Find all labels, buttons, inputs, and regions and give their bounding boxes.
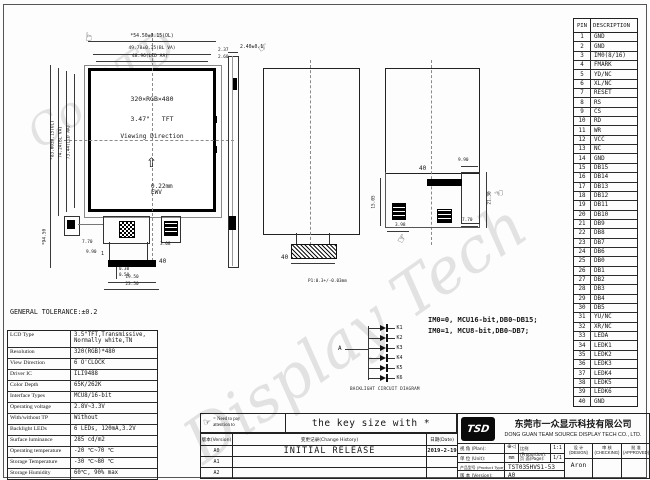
change-date: 2019-2-19 xyxy=(427,446,457,456)
dim-pitch1: 0.30 xyxy=(119,267,129,272)
pin-row: 35LEDK2 xyxy=(574,350,637,359)
cathode-label: K5 xyxy=(395,365,403,371)
spec-row: Color Depth65K/262K xyxy=(8,380,157,391)
led-wire xyxy=(368,328,380,329)
backlight-anode-wire xyxy=(345,349,368,350)
spec-row: With/without TPWithout xyxy=(8,413,157,424)
company-name-en: DONG GUAN TEAM SOURCE DISPLAY TECH CO., … xyxy=(496,432,650,438)
checking-label-en: (CHECKING) xyxy=(593,450,621,455)
bezel-tab-mark xyxy=(213,146,217,153)
plan-label: 视 角 (Plan): xyxy=(458,444,504,453)
dim-height-bl: 74.24(BL VA) xyxy=(60,126,65,158)
pin-table-body: 1GND2GND3IM0(8/16)4FMARK5YD/NC6XL/NC7RES… xyxy=(574,33,637,406)
dim-height-outline: *83.00±0.15(OL) xyxy=(52,120,57,160)
dim-bottom-right: 7.70 xyxy=(462,219,473,224)
change-description: INITIAL RELEASE xyxy=(233,446,427,456)
approved-signature xyxy=(621,458,650,478)
pin-number: 24 xyxy=(574,248,591,256)
pin-row: 4FMARK xyxy=(574,60,637,69)
product-type-value: TST035HVS1-53 xyxy=(504,462,564,470)
pin-description: IM0(8/16) xyxy=(591,53,637,59)
led-wire xyxy=(368,378,380,379)
change-version: A1 xyxy=(201,457,233,467)
unit-label: 单 位 (Unit): xyxy=(458,453,504,462)
front-view-dot-pitch: 0.22mm EWV xyxy=(151,184,173,197)
backlight-led-branch: K5 xyxy=(368,364,438,372)
pin-description: VCC xyxy=(591,137,637,143)
change-version: A2 xyxy=(201,468,233,478)
pin-description: WR xyxy=(591,128,637,134)
spec-value: 6 LEDs, 120mA,3.2V xyxy=(70,425,157,435)
pin-description: DB2 xyxy=(591,277,637,283)
spec-label: With/without TP xyxy=(8,414,70,424)
change-history-rows: A0INITIAL RELEASE2019-2-19A1A2 xyxy=(201,445,457,478)
change-description xyxy=(233,468,427,478)
spec-row: Storage Humidity60℃, 90% max xyxy=(8,468,157,479)
pin-number: 27 xyxy=(574,276,591,284)
company-row: TSD 东莞市一众显示科技有限公司 DONG GUAN TEAM SOURCE … xyxy=(458,414,650,444)
pin-description: DB8 xyxy=(591,230,637,236)
pin-row: 8RS xyxy=(574,97,637,106)
back-view-mid-pin40: 40 xyxy=(281,255,288,261)
side-view-fpc-fold xyxy=(229,216,236,230)
change-history-row: A0INITIAL RELEASE2019-2-19 xyxy=(201,445,457,456)
spec-label: Operating temperature xyxy=(8,447,70,457)
back-view-right-pin40: 40 xyxy=(419,166,426,172)
checking-signature xyxy=(592,458,621,478)
pin-number: 26 xyxy=(574,267,591,275)
pin-row: 17DB13 xyxy=(574,182,637,191)
proportion-label: 比例(Proportion): xyxy=(518,444,550,453)
back-view-mid-pitch-note: P1:0.3+/-0.03mm xyxy=(308,280,347,285)
dim-line-width-aa xyxy=(96,61,208,62)
pin-number: 16 xyxy=(574,173,591,181)
dim-right-1: 2.37 xyxy=(218,49,229,54)
pin-row: 38LEDK5 xyxy=(574,378,637,387)
spec-label: Storage Humidity xyxy=(8,469,70,479)
spec-row: Operating voltage2.8V~3.3V xyxy=(8,402,157,413)
front-view-size: 3.47" TFT xyxy=(92,116,212,123)
spec-label: Backlight LEDs xyxy=(8,425,70,435)
viewing-direction-arrow-icon: ⇧ xyxy=(146,157,157,171)
spec-row: Resolution320(RGB)*480 xyxy=(8,347,157,358)
spec-row: Driver ICILI9488 xyxy=(8,369,157,380)
dim-line-right-top xyxy=(461,166,478,167)
pin-description: NC xyxy=(591,146,637,152)
spec-value: -30 ℃~80 ℃ xyxy=(70,458,157,468)
pin-number: 21 xyxy=(574,220,591,228)
fpc-pin1-label: 1 xyxy=(101,252,104,257)
dim-fpc-left1: 7.70 xyxy=(82,241,93,246)
pin-row: 16DB14 xyxy=(574,172,637,181)
change-history-header: 版本(Version) 变更记录(Change History) 日期(Date… xyxy=(201,433,457,445)
spec-label: Driver IC xyxy=(8,370,70,380)
pin-row: 31YU/NC xyxy=(574,312,637,321)
spec-row: View Direction6 O'CLOCK xyxy=(8,358,157,369)
pin-description: DB7 xyxy=(591,240,637,246)
bezel-tab-mark xyxy=(213,116,217,123)
pin-row: 28DB3 xyxy=(574,284,637,293)
fpc-side-component-body xyxy=(67,220,75,229)
pin-description: LEDK2 xyxy=(591,352,637,358)
backlight-led-branch: K6 xyxy=(368,374,438,382)
key-size-cell: the key size with * xyxy=(286,414,457,433)
spec-label: LCD Type xyxy=(8,331,70,347)
led-wire xyxy=(388,338,395,339)
spec-row: Interface TypesMCU8/16-bit xyxy=(8,391,157,402)
pin-row: 23DB7 xyxy=(574,238,637,247)
key-size-text: the key size with * xyxy=(312,418,430,429)
back-view-mid-outline xyxy=(263,68,360,235)
page-value: 1/1 xyxy=(550,453,564,462)
pin-description: DB14 xyxy=(591,174,637,180)
pin-row: 33LEDA xyxy=(574,331,637,340)
pin-number: 20 xyxy=(574,211,591,219)
pin-number: 25 xyxy=(574,257,591,265)
pin-table-header: PIN DESCRIPTION xyxy=(574,19,637,33)
datasheet-page: { "icons": {"hand": "☞", "up_arrow": "⇧"… xyxy=(0,0,650,480)
pin-description: DB1 xyxy=(591,268,637,274)
pin-row: 27DB2 xyxy=(574,275,637,284)
pin-number: 36 xyxy=(574,360,591,368)
cathode-label: K6 xyxy=(395,375,403,381)
led-wire xyxy=(368,348,380,349)
logo-text: TSD xyxy=(466,424,490,435)
pin-row: 34LEDK1 xyxy=(574,340,637,349)
pin-row: 5YD/NC xyxy=(574,69,637,78)
dim-bottom-left: 3.98 xyxy=(395,224,406,229)
pin-description: CS xyxy=(591,109,637,115)
attention-hand-icon: ☞ xyxy=(82,32,95,42)
pin-number: 35 xyxy=(574,351,591,359)
dim-line-thickness xyxy=(228,52,238,53)
pitch-tick xyxy=(116,267,117,279)
legend-note-line2: attention to xyxy=(213,423,240,429)
spec-label: Operating voltage xyxy=(8,403,70,413)
spec-value: ILI9488 xyxy=(70,370,157,380)
pin-description: RESET xyxy=(591,90,637,96)
pin-number: 33 xyxy=(574,332,591,340)
pin-number: 29 xyxy=(574,295,591,303)
pin-number: 15 xyxy=(574,164,591,172)
spec-table: LCD Type3.5"TFT,Transmissive, Normally w… xyxy=(7,330,158,480)
company-logo: TSD xyxy=(461,417,495,441)
pin-description: GND xyxy=(591,399,637,405)
pin-number: 5 xyxy=(574,70,591,78)
history-header: 变更记录(Change History) xyxy=(233,434,427,445)
pin-row: 36LEDK3 xyxy=(574,359,637,368)
spec-value: 60℃, 90% max xyxy=(70,469,157,479)
dim-fpc-left2: 9.90 xyxy=(86,251,97,256)
pin-number: 11 xyxy=(574,126,591,134)
spec-value: 285 cd/m2 xyxy=(70,436,157,446)
spec-label: Resolution xyxy=(8,348,70,358)
pin-description: DB5 xyxy=(591,305,637,311)
pin-number: 4 xyxy=(574,61,591,69)
backside-ic-2 xyxy=(437,209,452,223)
version-value: A0 xyxy=(504,470,564,478)
pin-row: 20DB10 xyxy=(574,210,637,219)
cathode-label: K4 xyxy=(395,355,403,361)
pin-description: DB13 xyxy=(591,184,637,190)
change-history-row: A2 xyxy=(201,467,457,478)
pin-description: LEDK3 xyxy=(591,361,637,367)
pin-number: 8 xyxy=(574,98,591,106)
backlight-anode-label: A xyxy=(338,346,342,352)
dim-conn-w: 19.50 xyxy=(125,276,138,281)
proportion-value: 1:1 xyxy=(550,444,564,453)
spec-label: Surface luminance xyxy=(8,436,70,446)
pin-description: LEDK6 xyxy=(591,389,637,395)
backside-ic-1 xyxy=(392,203,406,220)
pin-row: 22DB8 xyxy=(574,228,637,237)
pin-description: DB9 xyxy=(591,221,637,227)
pin-table: PIN DESCRIPTION 1GND2GND3IM0(8/16)4FMARK… xyxy=(573,18,638,407)
dim-height-total: *94.50 xyxy=(44,229,49,246)
back-view-mid-centerline xyxy=(310,60,311,250)
pin-description: YU/NC xyxy=(591,314,637,320)
pin-description: DB3 xyxy=(591,286,637,292)
pin-row: 40GND xyxy=(574,396,637,405)
unit-value: mm xyxy=(504,453,518,462)
pin-description: GND xyxy=(591,44,637,50)
front-view-centerline-v xyxy=(152,33,153,266)
design-signature: Aron xyxy=(564,458,592,478)
pin-row: 30DB5 xyxy=(574,303,637,312)
back-view-mid-dim-line xyxy=(291,263,335,264)
pin-number: 39 xyxy=(574,388,591,396)
pin-row: 2GND xyxy=(574,41,637,50)
pin-description: FMARK xyxy=(591,62,637,68)
pin-description: GND xyxy=(591,34,637,40)
change-date xyxy=(427,468,457,478)
product-type-label: 产品型号 (Product Type): xyxy=(458,462,504,470)
design-label-en: (DESIGN) xyxy=(565,450,592,455)
dim-fpc-w: 23.50 xyxy=(125,283,138,288)
spec-value: 320(RGB)*480 xyxy=(70,348,157,358)
spec-value: 2.8V~3.3V xyxy=(70,403,157,413)
dim-line-width-outline xyxy=(88,41,216,42)
pin-number: 7 xyxy=(574,89,591,97)
pin-number: 12 xyxy=(574,136,591,144)
fpc-pin40-label: 40 xyxy=(159,259,166,265)
legend-cell: ☞ = Need to pay attention to xyxy=(201,414,286,433)
dim-line-bottom-right xyxy=(461,226,478,227)
led-wire xyxy=(388,378,395,379)
pin-description: LEDK4 xyxy=(591,371,637,377)
change-history-row: A1 xyxy=(201,456,457,467)
dim-right-2: 2.60 xyxy=(218,56,229,61)
interface-note-line1: IM0=0, MCU16-bit,DB0~DB15; xyxy=(428,317,538,325)
pin-description: YD/NC xyxy=(591,72,637,78)
pin-row: 37LEDK4 xyxy=(574,368,637,377)
pin-description: XR/NC xyxy=(591,324,637,330)
pin-row: 10RD xyxy=(574,116,637,125)
pin-number: 22 xyxy=(574,229,591,237)
pin-row: 3IM0(8/16) xyxy=(574,51,637,60)
pin-number: 30 xyxy=(574,304,591,312)
fpc-neck xyxy=(109,242,148,261)
change-date xyxy=(427,457,457,467)
pin-description: LEDK1 xyxy=(591,343,637,349)
pin-col-header: PIN xyxy=(574,19,591,32)
back-view-right-connector-bar xyxy=(427,179,462,186)
approved-label-en: (APPROVED) xyxy=(622,450,650,455)
spec-row: Backlight LEDs6 LEDs, 120mA,3.2V xyxy=(8,424,157,435)
pin-description: LEDK5 xyxy=(591,380,637,386)
interface-note-line2: IM0=1, MCU8-bit,DB0~DB7; xyxy=(428,328,529,336)
pin-description: RD xyxy=(591,118,637,124)
pin-number: 28 xyxy=(574,285,591,293)
pin-number: 34 xyxy=(574,341,591,349)
fpc-connector-bar xyxy=(108,260,156,267)
projection-symbol: ⊕◁ xyxy=(504,444,518,453)
pin-row: 11WR xyxy=(574,125,637,134)
pin-number: 31 xyxy=(574,313,591,321)
dim-line-height-aa xyxy=(74,74,75,208)
approved-header: 批 准 (APPROVED) xyxy=(621,444,650,458)
front-view-viewing-direction: Viewing Direction xyxy=(92,134,212,141)
side-view-tape-mark xyxy=(233,78,237,90)
pin-row: 32XR/NC xyxy=(574,322,637,331)
back-view-right-tab xyxy=(461,172,480,224)
design-header: 设 计 (DESIGN) xyxy=(564,444,592,458)
spec-row: Storage Temperature-30 ℃~80 ℃ xyxy=(8,457,157,468)
pin-number: 9 xyxy=(574,108,591,116)
pin-number: 6 xyxy=(574,80,591,88)
company-name-cn: 东莞市一众显示科技有限公司 xyxy=(498,417,648,430)
pin-row: 26DB1 xyxy=(574,266,637,275)
dim-line-fpc-w xyxy=(104,289,159,290)
dim-width-bl: 49.78±0.35(BL VA) xyxy=(128,47,175,52)
backlight-led-branch: K3 xyxy=(368,344,438,352)
pin-row: 39LEDK6 xyxy=(574,387,637,396)
pin-number: 40 xyxy=(574,397,591,405)
driver-ic-chip xyxy=(119,221,135,238)
pin-number: 23 xyxy=(574,239,591,247)
led-wire xyxy=(368,368,380,369)
spec-row: LCD Type3.5"TFT,Transmissive, Normally w… xyxy=(8,331,157,347)
front-view-resolution: 320×RGB×480 xyxy=(92,96,212,103)
dim-line-left-side xyxy=(380,178,381,226)
led-wire xyxy=(368,358,380,359)
spec-row: Operating temperature-20 ℃~70 ℃ xyxy=(8,446,157,457)
pin-description: DB0 xyxy=(591,258,637,264)
spec-label: View Direction xyxy=(8,359,70,369)
title-block: TSD 东莞市一众显示科技有限公司 DONG GUAN TEAM SOURCE … xyxy=(457,414,649,478)
spec-label: Storage Temperature xyxy=(8,458,70,468)
pin-number: 32 xyxy=(574,323,591,331)
pin-description: DB15 xyxy=(591,165,637,171)
pin-description: DB6 xyxy=(591,249,637,255)
pin-row: 15DB15 xyxy=(574,163,637,172)
backlight-caption: BACKLIGHT CIRCUIT DIAGRAM xyxy=(350,388,420,393)
pin-description: GND xyxy=(591,156,637,162)
version-label: 版 本 (Version): xyxy=(458,470,504,478)
back-view-mid-connector xyxy=(291,244,337,259)
led-wire xyxy=(368,338,380,339)
title-and-revision-block: ☞ = Need to pay attention to the key siz… xyxy=(200,413,650,479)
led-wire xyxy=(388,348,395,349)
pin-row: 14GND xyxy=(574,153,637,162)
pin-number: 3 xyxy=(574,52,591,60)
spec-value: 65K/262K xyxy=(70,381,157,391)
pin-row: 7RESET xyxy=(574,88,637,97)
spec-row: Surface luminance285 cd/m2 xyxy=(8,435,157,446)
pin-description: RS xyxy=(591,100,637,106)
dim-line-height-total xyxy=(50,65,51,268)
backlight-led-branch: K4 xyxy=(368,354,438,362)
pin-number: 37 xyxy=(574,369,591,377)
spec-value: 6 O'CLOCK xyxy=(70,359,157,369)
pin-row: 18DB12 xyxy=(574,191,637,200)
pin-number: 18 xyxy=(574,192,591,200)
pin-number: 19 xyxy=(574,201,591,209)
pin-row: 12VCC xyxy=(574,135,637,144)
pin-row: 1GND xyxy=(574,33,637,41)
cathode-label: K2 xyxy=(395,335,403,341)
page-label: 页 面(Page): xyxy=(518,453,550,462)
pin-number: 2 xyxy=(574,42,591,50)
pin-description: DB10 xyxy=(591,212,637,218)
pin-row: 21DB9 xyxy=(574,219,637,228)
change-version: A0 xyxy=(201,446,233,456)
pin-description: DB4 xyxy=(591,296,637,302)
cathode-label: K1 xyxy=(395,325,403,331)
general-tolerance-note: GENERAL TOLERANCE:±0.2 xyxy=(10,309,97,316)
pin-row: 19DB11 xyxy=(574,200,637,209)
pin-row: 24DB6 xyxy=(574,247,637,256)
pin-number: 1 xyxy=(574,33,591,41)
dim-right-side: 21.30 xyxy=(489,191,494,204)
spec-label: Interface Types xyxy=(8,392,70,402)
pin-number: 10 xyxy=(574,117,591,125)
dim-right-top: 9.90 xyxy=(458,159,469,164)
pin-number: 17 xyxy=(574,183,591,191)
led-wire xyxy=(388,368,395,369)
pin-description: LEDA xyxy=(591,333,637,339)
date-header: 日期(Date) xyxy=(427,434,457,445)
dim-width-outline: *54.50±0.15(OL) xyxy=(130,34,173,39)
pin-row: 9CS xyxy=(574,107,637,116)
spec-value: MCU8/16-bit xyxy=(70,392,157,402)
pin-description: XL/NC xyxy=(591,81,637,87)
fpc-component-body xyxy=(164,221,178,236)
version-header: 版本(Version) xyxy=(201,434,233,445)
spec-label: Color Depth xyxy=(8,381,70,391)
led-wire xyxy=(388,358,395,359)
pin-description: DB11 xyxy=(591,202,637,208)
pin-row: 6XL/NC xyxy=(574,79,637,88)
dim-width-aa: 48.96(LCD AA) xyxy=(132,55,168,60)
dim-fpc-right: 3.08 xyxy=(160,243,171,248)
cathode-label: K3 xyxy=(395,345,403,351)
led-wire xyxy=(388,328,395,329)
dim-height-aa: 73.44(LCD AA) xyxy=(68,125,73,159)
checking-header: 审 核 (CHECKING) xyxy=(592,444,621,458)
pin-row: 25DB0 xyxy=(574,256,637,265)
pin-number: 38 xyxy=(574,379,591,387)
pin-description: DB12 xyxy=(591,193,637,199)
pin-row: 29DB4 xyxy=(574,294,637,303)
spec-value: 3.5"TFT,Transmissive, Normally white,TN xyxy=(70,331,157,347)
hand-icon: ☞ xyxy=(201,418,213,428)
description-col-header: DESCRIPTION xyxy=(591,23,637,29)
dim-left-side: 15.05 xyxy=(373,195,378,208)
pin-row: 13NC xyxy=(574,144,637,153)
pin-number: 14 xyxy=(574,154,591,162)
spec-value: Without xyxy=(70,414,157,424)
